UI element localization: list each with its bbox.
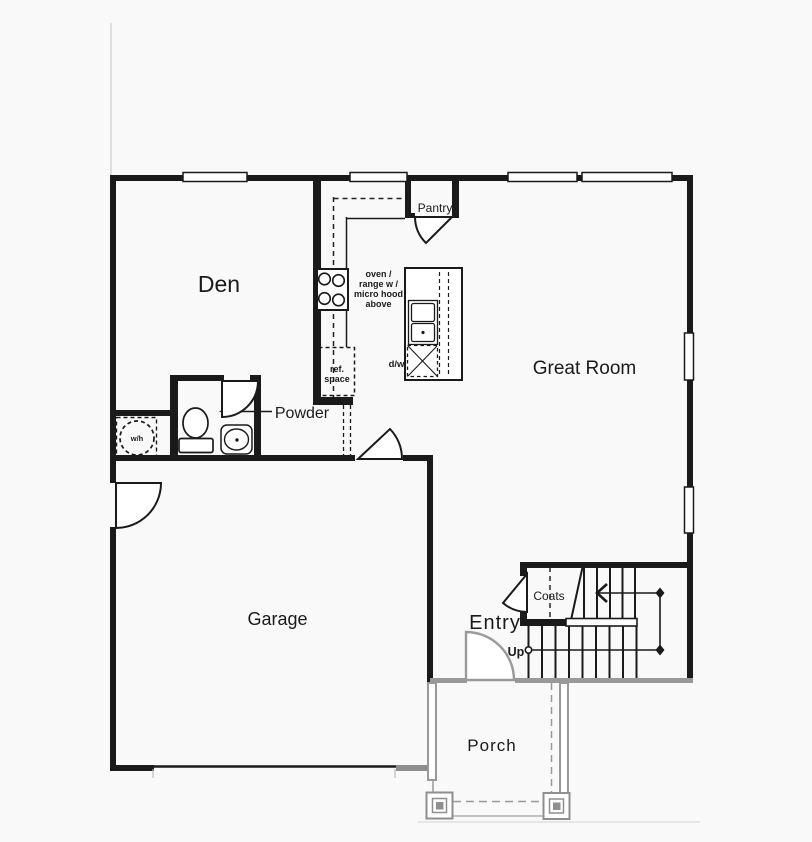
window-den	[183, 173, 247, 182]
wall-garage-east	[427, 455, 433, 683]
toilet-tank	[179, 439, 213, 453]
window-great-room-1	[508, 173, 577, 182]
room-label-entry: Entry	[469, 612, 521, 634]
direction-start-node	[525, 647, 531, 653]
room-label-powder: Powder	[275, 405, 330, 422]
window-great-room-2	[582, 173, 672, 182]
pantry-door	[415, 217, 452, 243]
label-dishwasher: d/w	[389, 359, 405, 370]
floor-plan-canvas: Den Great Room Garage Entry Porch Powder…	[0, 0, 812, 842]
label-oven-line2: range w /	[359, 279, 399, 289]
wall-pantry-west	[405, 178, 411, 218]
wall-left-upper	[110, 175, 116, 483]
sink-basin-top	[412, 304, 435, 322]
window-right-2	[685, 487, 694, 533]
direction-node-diamond	[656, 588, 665, 599]
entry-front-wall-right	[515, 678, 693, 683]
label-oven-line3: micro hood	[354, 289, 403, 299]
wall-powder-west	[170, 375, 178, 458]
kitchen	[317, 197, 405, 456]
porch-wall-east	[560, 683, 568, 793]
wall-closet-bottom	[520, 619, 568, 626]
porch-column-left	[427, 793, 453, 819]
powder-sink-drain	[235, 438, 238, 441]
room-label-den: Den	[198, 271, 240, 297]
label-ref-space: ref. space	[324, 364, 350, 384]
room-label-great-room: Great Room	[533, 358, 636, 379]
wall-left-lower	[110, 527, 116, 771]
porch-wall-west	[428, 683, 436, 780]
porch-column-right	[544, 793, 570, 819]
direction-node-diamond	[656, 645, 665, 656]
label-water-heater: w/h	[130, 434, 144, 443]
burner	[333, 294, 345, 306]
coats-closet-door	[503, 574, 527, 612]
wall-powder-top	[170, 375, 224, 381]
stair-closet-divider	[571, 565, 583, 620]
label-oven-line1: oven /	[365, 269, 392, 279]
label-up: Up	[508, 645, 525, 659]
room-label-garage: Garage	[247, 609, 307, 629]
room-labels: Den Great Room Garage Entry Porch Powder…	[130, 201, 636, 755]
porch-structure	[396, 678, 700, 822]
kitchen-island	[405, 268, 462, 380]
wall-pantry-south-stub	[405, 213, 415, 218]
wall-garage-bottom-corner	[110, 765, 154, 771]
burner	[319, 293, 331, 305]
label-ref-line1: ref.	[330, 364, 344, 374]
label-oven-line4: above	[365, 299, 391, 309]
sink-drain	[421, 331, 424, 334]
wall-right	[687, 175, 693, 683]
wall-garage-top-left	[110, 455, 355, 461]
toilet-bowl	[183, 408, 208, 438]
label-ref-line2: space	[324, 374, 350, 384]
floor-plan-page: Den Great Room Garage Entry Porch Powder…	[0, 0, 812, 842]
room-label-coats: Coats	[533, 589, 564, 603]
window-right-1	[685, 333, 694, 380]
wall-kitchen-west-stub	[313, 397, 353, 405]
wall-pantry-east	[452, 178, 459, 218]
label-oven-range: oven / range w / micro hood above	[354, 269, 403, 309]
window-kitchen	[350, 173, 407, 182]
room-label-pantry: Pantry	[418, 201, 453, 215]
garage-interior-door	[358, 429, 402, 459]
stair-landing-bar	[566, 619, 637, 627]
garage-side-door	[116, 483, 161, 528]
burner	[333, 275, 345, 287]
stair-treads-lower	[529, 626, 637, 678]
room-label-porch: Porch	[467, 736, 516, 755]
burner	[319, 273, 331, 285]
wall-stair-top	[520, 562, 693, 568]
wall-wh-nook-top	[110, 410, 172, 416]
